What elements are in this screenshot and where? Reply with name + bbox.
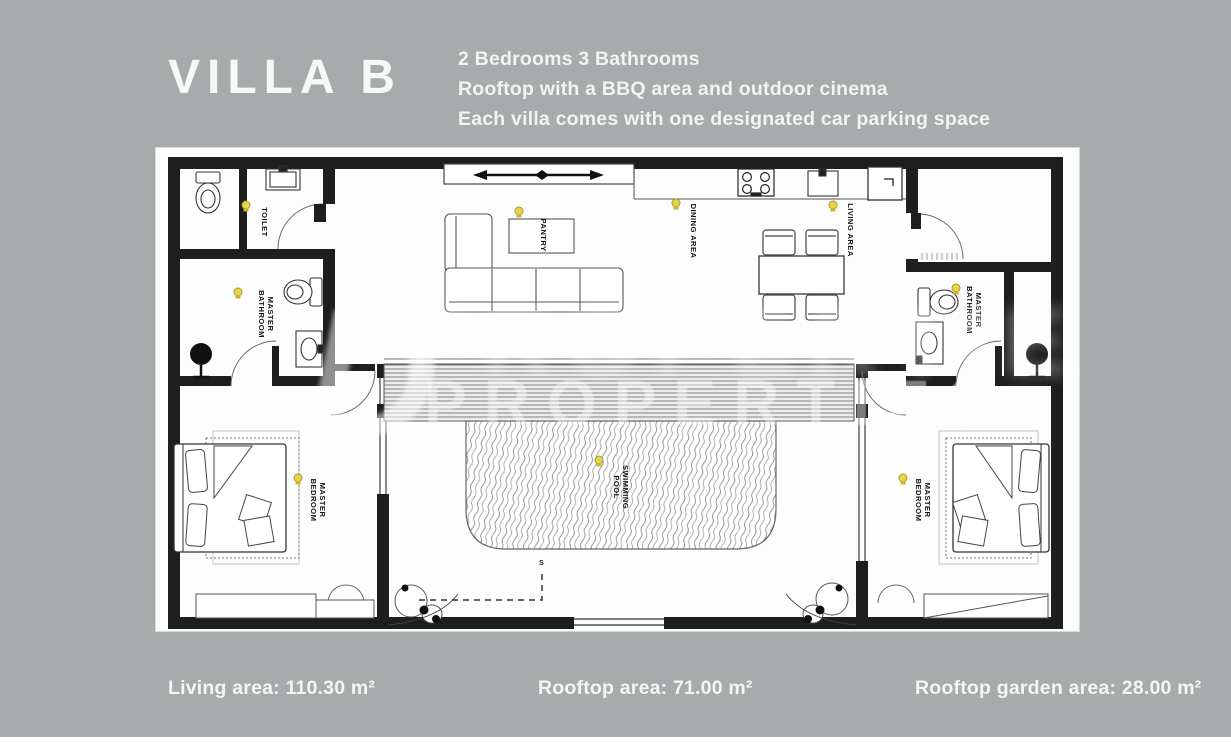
dining-table-set [759,230,844,320]
toilet-fixture-small-room [196,172,220,213]
lamp-icon [294,474,302,485]
toilet-fixture-right-bathroom [918,288,958,316]
slider-jamb-right [664,617,669,629]
room-label-bedroom: BEDROOM [914,479,923,522]
lamp-icon [234,288,242,299]
room-label-living-area: LIVING AREA [846,203,855,257]
feature-list: 2 Bedrooms 3 Bathrooms Rooftop with a BB… [458,44,990,134]
toilet-fixture-left-bathroom [284,278,322,306]
right-bedroom [924,431,1049,618]
stairs-marker-label: S [539,560,544,567]
cabinet-left [316,600,374,618]
feature-line-2: Rooftop with a BBQ area and outdoor cine… [458,74,990,104]
room-label-master: MASTER [923,483,932,518]
feature-line-1: 2 Bedrooms 3 Bathrooms [458,44,990,74]
lamp-icon [515,207,523,218]
sliding-door-top [444,164,634,184]
rooftop-area-value: Rooftop area: 71.00 m² [538,677,753,700]
room-label-bedroom: BEDROOM [309,479,318,522]
room-label-bathroom: BATHROOM [965,286,974,334]
pillow [1018,449,1041,492]
threshold-hatch [922,253,957,260]
rooftop-garden-area-value: Rooftop garden area: 28.00 m² [915,677,1201,700]
floorplan-card: S TOILET MASTER BATHROOM MASTER BEDROOM … [155,147,1080,632]
lamp-icon [672,199,680,210]
stove [738,169,774,196]
stairs-path: S [419,560,544,600]
room-label-swimming: SWIMMING [621,465,630,509]
page-title: VILLA B [168,50,402,105]
pillow [186,503,208,546]
fridge [868,167,902,200]
room-label-pantry: PANTRY [539,218,548,251]
desk-left [196,594,316,618]
rooftop-deck [384,364,854,421]
folded-towels [958,516,988,546]
floor-lamp-left [190,343,212,377]
vanity-left-bathroom [296,331,324,367]
slider-jamb-left [569,617,574,629]
room-label-pool: POOL [612,475,621,498]
page: { "page": { "background": "#a8abac" }, "… [0,0,1231,742]
bottom-edge-strip [0,737,1231,742]
vanity-right-bathroom [916,322,943,364]
living-area-value: Living area: 110.30 m² [168,677,375,700]
kitchen-sink [808,169,838,196]
room-label-master: MASTER [266,297,275,332]
pillow [185,449,208,492]
floor-lamp-right [1026,343,1048,377]
folded-towels [244,516,274,546]
room-label-bathroom: BATHROOM [257,290,266,338]
room-label-master: MASTER [974,293,983,328]
feature-line-3: Each villa comes with one designated car… [458,104,990,134]
room-label-master: MASTER [318,483,327,518]
pillow [1019,503,1041,546]
floorplan-drawing: S TOILET MASTER BATHROOM MASTER BEDROOM … [156,148,1080,632]
room-label-toilet: TOILET [260,207,269,237]
lamp-icon [899,474,907,485]
sink-toilet-room [266,166,300,190]
left-bedroom [174,431,374,618]
lamp-icon [829,201,837,212]
room-label-dining-area: DINING AREA [689,204,698,259]
